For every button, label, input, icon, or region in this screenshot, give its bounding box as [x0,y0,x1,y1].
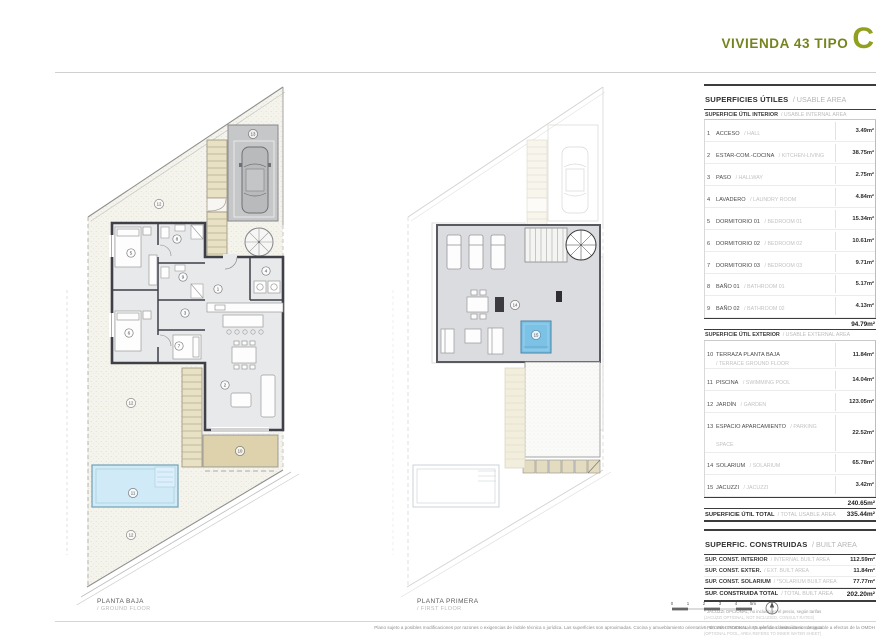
svg-text:13: 13 [251,132,256,137]
roof-tiles [523,460,600,473]
built-area-table: SUPERFIC. CONSTRUIDAS / BUILT AREA SUP. … [704,529,876,602]
area-row: 14SOLARIUM / SOLARIUM65.78m² [705,453,875,475]
roof-area [523,362,600,473]
usable-area-table: SUPERFICIES ÚTILES / USABLE AREA SUPERFI… [704,84,876,522]
compass-icon [766,602,778,614]
solarium [437,225,600,362]
ground-floor-label-en: / GROUND FLOOR [97,606,151,613]
svg-text:12: 12 [129,401,134,406]
room-number-12: 12 [126,530,135,539]
ground-floor-label: PLANTA BAJA / GROUND FLOOR [97,598,151,613]
area-row: 6DORMITORIO 02 / BEDROOM 0210.61m² [705,230,875,252]
exterior-total-row: 240.65m² [704,497,876,509]
parking-space [228,125,278,221]
room-number-6: 6 [125,329,133,337]
svg-text:11: 11 [131,491,136,496]
svg-text:15: 15 [534,333,539,338]
room-number-1: 1 [214,285,222,293]
area-row: 4LAVADERO / LAUNDRY ROOM4.84m² [705,186,875,208]
room-number-15: 15 [531,330,540,339]
ghost-garden-steps [505,368,525,468]
first-floor-plan: 14 15 [385,85,695,605]
swimming-pool [92,465,178,507]
access-door [556,291,562,302]
built-row: SUP. CONST. EXTER./ EXT. BUILT AREA11.84… [704,566,876,577]
area-row: 1ACCESO / HALL3.49m² [705,120,875,142]
svg-text:8: 8 [176,237,179,243]
scale-tick-4: 4 [735,601,738,606]
area-row: 8BAÑO 01 / BATHROOM 015.17m² [705,274,875,296]
room-number-13: 13 [248,129,257,138]
title-type-letter: C [852,24,874,54]
room-number-10: 10 [235,446,244,455]
room-number-11: 11 [128,488,137,497]
built-row: SUP. CONST. SOLARIUM/ *SOLARIUM BUILT AR… [704,577,876,588]
title-text: VIVIENDA 43 TIPO [721,36,848,51]
room-number-12: 12 [154,199,163,208]
area-row: 3PASO / HALLWAY2.75m² [705,164,875,186]
usable-header-en: / USABLE AREA [793,95,847,104]
header-divider [55,72,876,73]
exterior-steps [207,140,227,257]
exterior-subheader: SUPERFICIE ÚTIL EXTERIOR / USABLE EXTERN… [704,329,876,341]
ghost-parking [548,125,598,221]
room-number-2: 2 [221,381,229,389]
scale-tick-1: 1 [687,601,690,606]
footer-divider [55,621,876,622]
usable-total-row: SUPERFICIE ÚTIL TOTAL / TOTAL USABLE ARE… [704,508,876,522]
area-row: 15JACUZZI / JACUZZI3.42m² [705,475,875,497]
svg-text:10: 10 [238,449,243,454]
room-number-7: 7 [175,342,183,350]
scale-tick-3: 3 [719,601,722,606]
interior-subheader: SUPERFICIE ÚTIL INTERIOR / USABLE INTERN… [704,110,876,121]
area-row: 12JARDÍN / GARDEN123.05m² [705,391,875,413]
area-row: 10TERRAZA PLANTA BAJA/ TERRACE GROUND FL… [705,341,875,369]
area-row: 5DORMITORIO 01 / BEDROOM 0115.34m² [705,208,875,230]
ghost-pool [413,465,499,507]
room-number-12: 12 [126,398,135,407]
svg-text:12: 12 [157,202,162,207]
svg-text:6: 6 [128,331,131,337]
first-floor-label: PLANTA PRIMERA / FIRST FLOOR [417,598,478,613]
area-tables: SUPERFICIES ÚTILES / USABLE AREA SUPERFI… [704,84,876,640]
exterior-rows: 10TERRAZA PLANTA BAJA/ TERRACE GROUND FL… [704,341,876,497]
area-row: 11PISCINA / SWIMMING POOL14.04m² [705,369,875,391]
interior-total-row: 94.79m² [704,318,876,330]
ground-floor-plan: 5 6 7 8 9 3 1 4 2 10 11 12 12 12 13 [55,85,365,605]
room-number-9: 9 [179,273,187,281]
scale-tick-0: 0 [671,601,674,606]
spiral-stair [566,230,596,260]
sun-loungers [447,235,505,269]
built-area-header: SUPERFIC. CONSTRUIDAS / BUILT AREA [704,529,876,555]
page-title: VIVIENDA 43 TIPO C [721,24,874,54]
area-row: 9BAÑO 02 / BATHROOM 024.13m² [705,296,875,318]
first-floor-label-es: PLANTA PRIMERA [417,598,478,606]
interior-rows: 1ACCESO / HALL3.49m² 2ESTAR-COM.-COCINA … [704,120,876,318]
scale-bar: 0 1 2 3 4 5m [666,598,796,618]
dining-table [232,341,256,369]
built-row: SUP. CONST. INTERIOR/ INTERNAL BUILT ARE… [704,555,876,566]
room-number-4: 4 [262,267,270,275]
scale-tick-5: 5m [750,601,756,606]
svg-text:3: 3 [184,311,187,317]
car-icon [239,147,271,213]
svg-text:1: 1 [217,287,220,293]
area-row: 13ESPACIO APARCAMIENTO / PARKING SPACE22… [705,413,875,453]
svg-text:9: 9 [182,275,185,281]
area-row: 2ESTAR-COM.-COCINA / KITCHEN-LIVING38.75… [705,142,875,164]
room-number-3: 3 [181,309,189,317]
svg-text:5: 5 [130,251,133,257]
usable-header-es: SUPERFICIES ÚTILES [705,95,788,104]
svg-text:4: 4 [265,269,268,275]
ground-floor-label-es: PLANTA BAJA [97,598,151,606]
disclaimer: Plano sujeto a posibles modificaciones p… [374,625,875,630]
svg-text:14: 14 [513,303,518,308]
garden-steps [182,368,202,467]
svg-text:2: 2 [224,383,227,389]
scale-tick-2: 2 [703,601,706,606]
first-floor-label-en: / FIRST FLOOR [417,606,478,613]
area-row: 7DORMITORIO 03 / BEDROOM 039.71m² [705,252,875,274]
svg-text:12: 12 [129,533,134,538]
usable-area-header: SUPERFICIES ÚTILES / USABLE AREA [704,84,876,110]
svg-text:7: 7 [178,344,181,350]
room-number-5: 5 [127,249,135,257]
room-number-8: 8 [173,235,181,243]
plan-sheet: VIVIENDA 43 TIPO C [0,0,880,640]
room-number-14: 14 [510,300,519,309]
bbq-unit [495,297,504,312]
spiral-stair [245,228,273,256]
